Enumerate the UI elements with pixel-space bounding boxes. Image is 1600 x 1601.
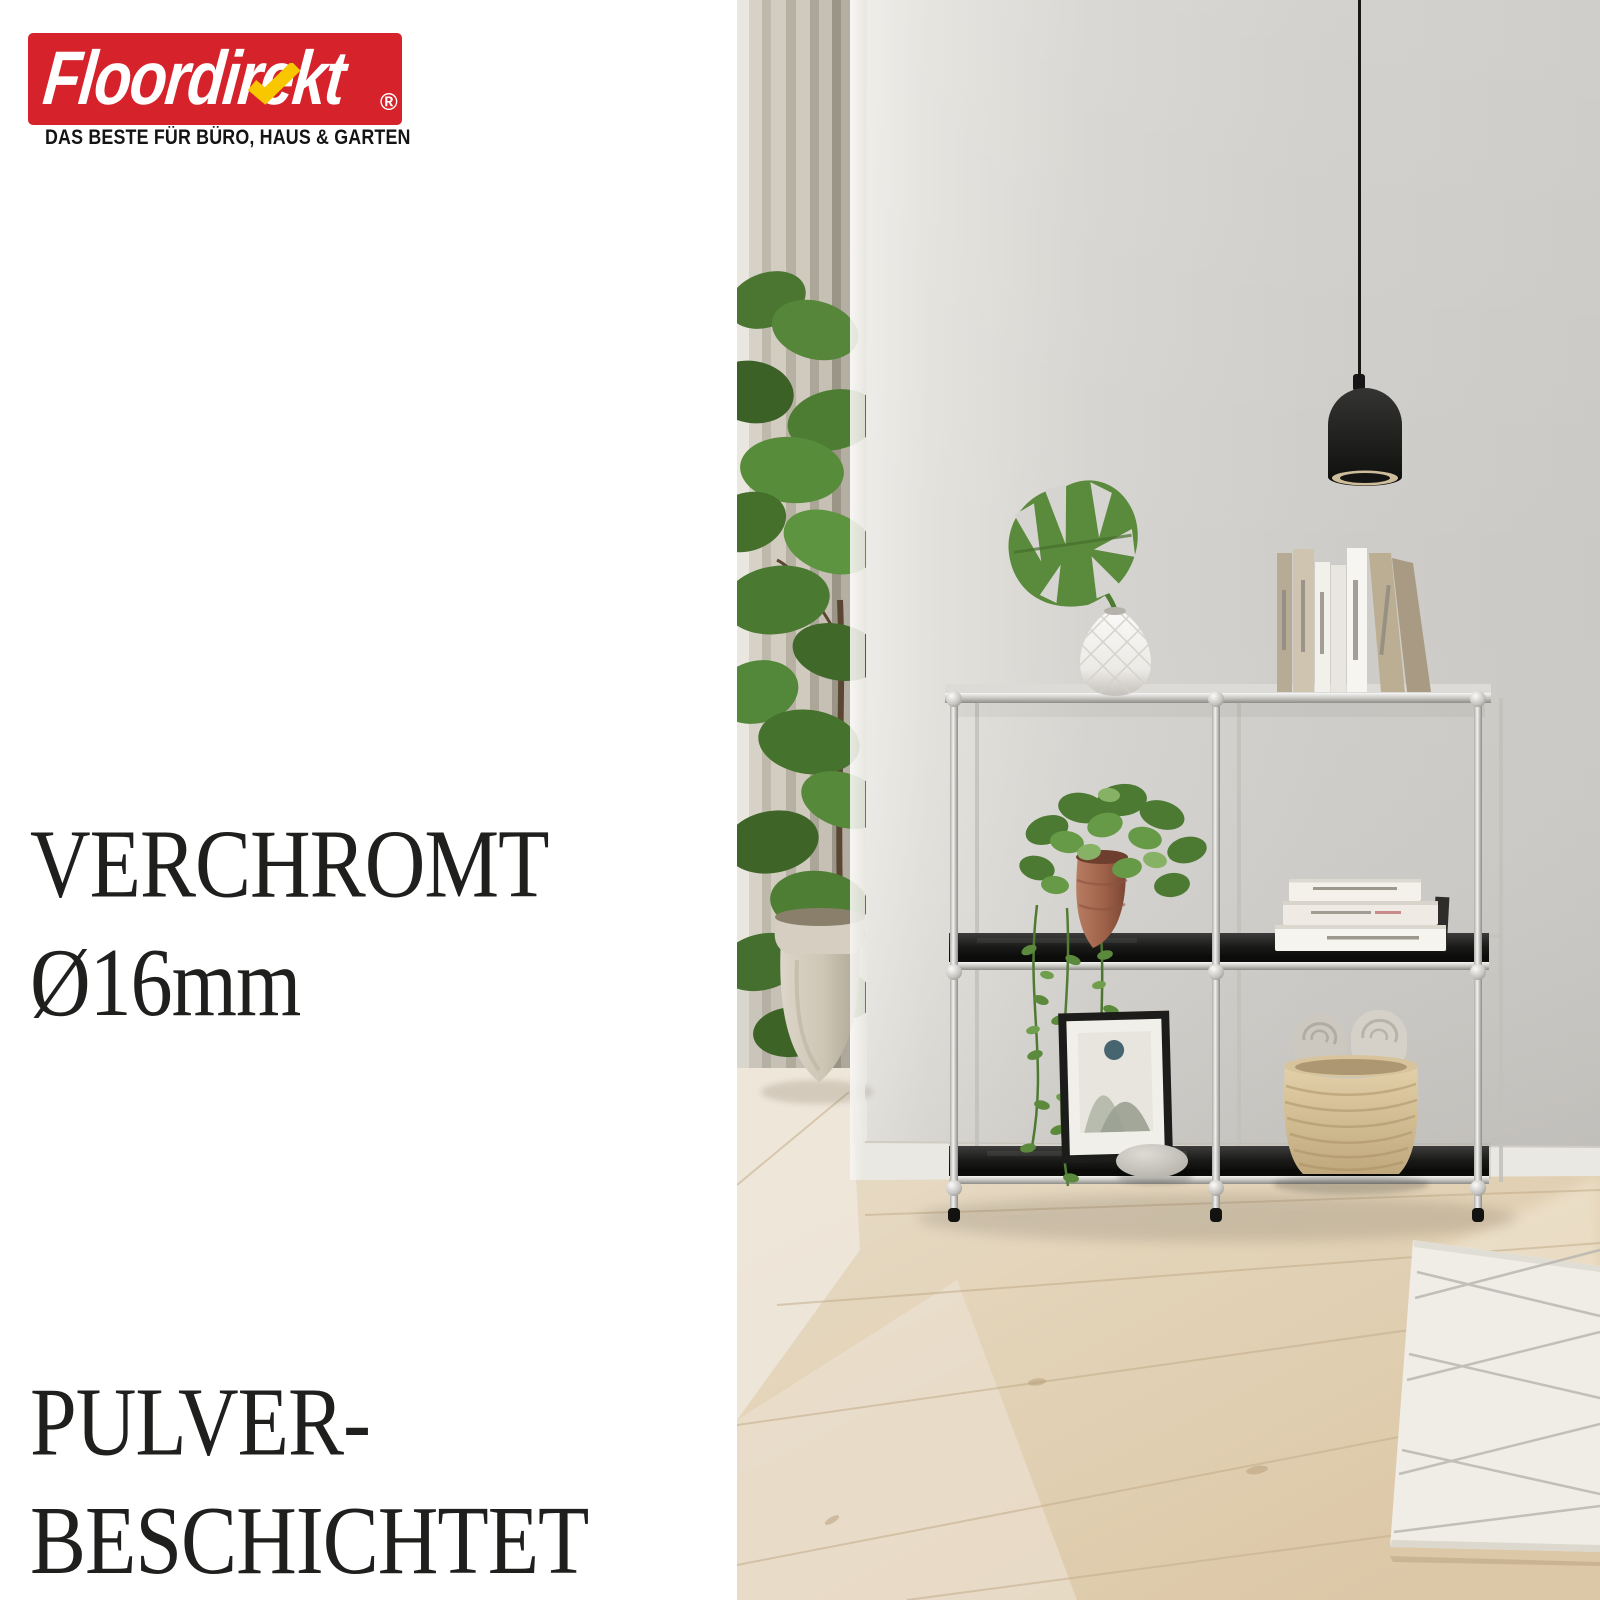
logo-tagline: DAS BESTE FÜR BÜRO, HAUS & GARTEN — [45, 126, 411, 150]
wall — [850, 0, 1600, 1182]
feature-2-line-1: PULVER- — [30, 1364, 588, 1482]
registered-trademark-icon: ® — [380, 89, 398, 117]
floordirekt-logo: Floordirekt ® — [28, 33, 402, 125]
feature-1-line-1: VERCHROMT — [30, 806, 548, 924]
picture-frame — [1058, 1011, 1173, 1164]
checkmark-icon — [246, 63, 302, 105]
promo-image: Floordirekt ® DAS BESTE FÜR BÜRO, HAUS &… — [0, 0, 1600, 1600]
logo-wordmark: Floordirekt — [39, 33, 349, 125]
rug — [1390, 1240, 1600, 1566]
wall-corner — [850, 0, 865, 1180]
feature-1-line-2: Ø16mm — [30, 924, 548, 1042]
books-top-shelf — [1277, 548, 1431, 692]
feature-2-line-2: BESCHICHTET — [30, 1482, 588, 1600]
left-panel: Floordirekt ® DAS BESTE FÜR BÜRO, HAUS &… — [0, 0, 737, 1600]
feature-text-pulverbeschichtet: PULVER- BESCHICHTET — [30, 1364, 588, 1601]
room-photo — [737, 0, 1600, 1600]
feature-text-verchromt: VERCHROMT Ø16mm — [30, 806, 548, 1043]
